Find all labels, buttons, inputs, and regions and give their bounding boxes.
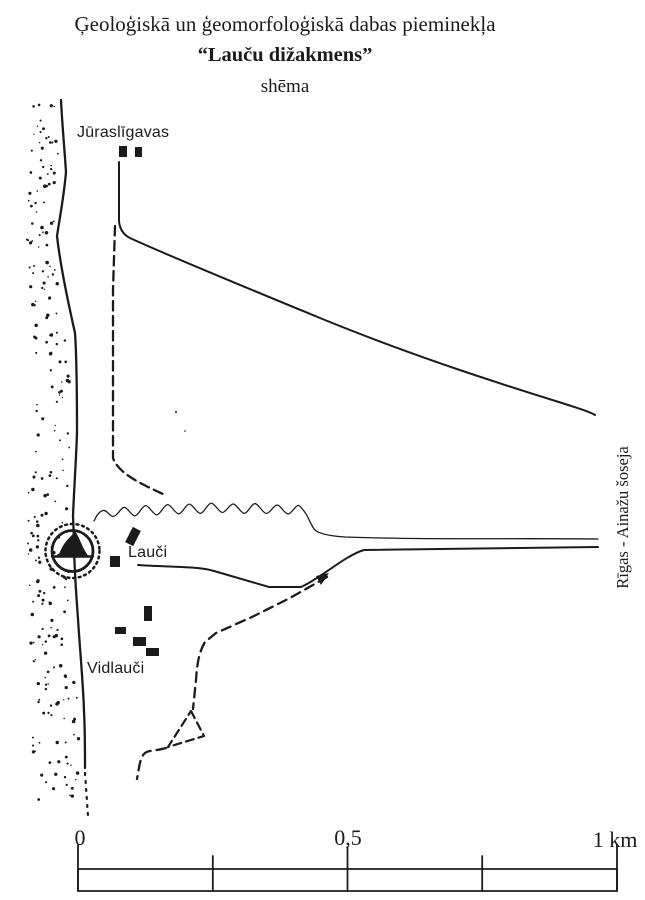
beach-dot bbox=[51, 385, 54, 388]
beach-dot bbox=[31, 222, 34, 225]
beach-dot bbox=[36, 211, 38, 213]
beach-dot bbox=[67, 432, 69, 434]
label-jurasligavas: Jūraslīgavas bbox=[77, 124, 169, 142]
beach-dot bbox=[31, 303, 34, 306]
beach-dot bbox=[64, 339, 66, 341]
beach-dot bbox=[51, 142, 53, 144]
beach-dot bbox=[27, 543, 29, 545]
paper-specks bbox=[175, 411, 186, 432]
beach-dot bbox=[54, 430, 56, 432]
beach-dot bbox=[33, 265, 35, 267]
beach-dot bbox=[36, 524, 40, 528]
beach-dot bbox=[53, 106, 54, 107]
beach-dot bbox=[42, 644, 43, 645]
beach-dot bbox=[65, 742, 67, 744]
beach-dot bbox=[54, 425, 55, 426]
beach-dot bbox=[56, 477, 58, 479]
building bbox=[119, 146, 127, 157]
beach-dot bbox=[39, 177, 42, 180]
beach-dot bbox=[66, 485, 68, 487]
beach-dot bbox=[41, 147, 44, 150]
beach-dot bbox=[62, 459, 64, 461]
beach-dot bbox=[47, 276, 49, 278]
coastline bbox=[57, 100, 85, 768]
footpath-arrow bbox=[316, 573, 329, 585]
beach-dot bbox=[50, 369, 52, 371]
beach-dot bbox=[32, 534, 35, 537]
beach-dot bbox=[54, 501, 56, 503]
building bbox=[133, 637, 146, 646]
beach-dot bbox=[36, 190, 38, 192]
beach-dot bbox=[60, 643, 63, 646]
beach-dot bbox=[45, 341, 48, 344]
beach-dot bbox=[50, 104, 53, 107]
beach-dot bbox=[53, 172, 56, 175]
beach-dot bbox=[55, 634, 58, 637]
beach-dot bbox=[46, 244, 49, 247]
beach-dot bbox=[37, 701, 39, 703]
beach-dot bbox=[59, 394, 61, 396]
footpath-triangle-loop bbox=[168, 711, 204, 747]
beach-dot bbox=[31, 488, 34, 491]
beach-dot bbox=[35, 471, 37, 473]
beach-dot bbox=[41, 477, 44, 480]
beach-dot bbox=[42, 270, 44, 272]
beach-dot bbox=[50, 471, 53, 474]
beach-dot bbox=[51, 352, 53, 354]
beach-dot bbox=[37, 579, 40, 582]
beach-dot bbox=[50, 222, 53, 225]
buildings bbox=[110, 146, 159, 656]
beach-dot bbox=[34, 750, 36, 752]
beach-dot bbox=[39, 742, 41, 744]
beach-dot bbox=[35, 410, 37, 412]
beach-dot bbox=[60, 390, 63, 393]
beach-dot bbox=[36, 545, 39, 548]
beach-dot bbox=[35, 352, 37, 354]
beach-dot bbox=[49, 474, 52, 477]
beach-dot bbox=[32, 105, 35, 108]
beach-dot bbox=[33, 642, 35, 644]
title-line3: shēma bbox=[0, 71, 570, 102]
footpath-south bbox=[193, 577, 327, 709]
beach-dot bbox=[71, 787, 74, 790]
scale-label-05: 0,5 bbox=[325, 825, 371, 851]
beach-dot bbox=[42, 712, 45, 715]
beach-dot bbox=[45, 261, 49, 265]
beach-dot bbox=[32, 272, 34, 274]
beach-dot bbox=[30, 205, 33, 208]
beach-dot bbox=[49, 266, 51, 268]
beach-dot bbox=[43, 281, 46, 284]
beach-dot bbox=[56, 332, 58, 334]
scale-label-1km: 1 km bbox=[586, 827, 644, 853]
beach-dot bbox=[38, 699, 40, 701]
beach-dot bbox=[62, 470, 64, 472]
beach-dot bbox=[63, 610, 66, 613]
beach-dot bbox=[29, 241, 32, 244]
beach-dot bbox=[41, 287, 43, 289]
beach-dot bbox=[29, 285, 32, 288]
beach-dot bbox=[69, 795, 71, 797]
beach-dot bbox=[27, 239, 29, 241]
beach-dot bbox=[38, 557, 40, 559]
beach-dot bbox=[45, 137, 47, 139]
beach-dot bbox=[50, 165, 52, 167]
beach-dot bbox=[36, 404, 38, 406]
beach-dot bbox=[54, 773, 57, 776]
beach-dot bbox=[47, 173, 49, 175]
beach-dot bbox=[66, 763, 68, 765]
beach-dot bbox=[32, 745, 34, 747]
beach-dot bbox=[29, 266, 31, 268]
beach-dot bbox=[38, 104, 41, 107]
beach-dot bbox=[37, 125, 38, 126]
beach-dot bbox=[34, 324, 37, 327]
beach-dot bbox=[56, 629, 58, 631]
beach-dot bbox=[64, 776, 66, 778]
beach-dot bbox=[44, 512, 47, 515]
beach-dot bbox=[40, 120, 42, 122]
label-vidlauci: Vidlauči bbox=[87, 660, 144, 678]
beach-dot bbox=[71, 794, 74, 797]
road-diagonal-to-highway bbox=[119, 221, 595, 415]
road-lauci bbox=[138, 547, 598, 587]
beach-dot bbox=[38, 590, 41, 593]
beach-dot bbox=[67, 600, 69, 602]
beach-dot bbox=[67, 380, 70, 383]
beach-dot bbox=[37, 433, 40, 436]
beach-dot bbox=[38, 246, 40, 248]
beach-dot bbox=[41, 417, 44, 420]
beach-dot bbox=[40, 131, 42, 133]
beach-dot bbox=[45, 684, 47, 686]
beach-dot bbox=[43, 201, 45, 203]
building bbox=[115, 627, 126, 634]
beach-dot bbox=[33, 476, 35, 478]
beach-dot bbox=[48, 136, 50, 138]
building bbox=[110, 556, 120, 567]
beach-dot bbox=[72, 681, 75, 684]
beach-dot bbox=[42, 166, 44, 168]
beach-dot bbox=[56, 313, 58, 315]
scale-label-0: 0 bbox=[70, 825, 90, 851]
beach-dot bbox=[31, 613, 35, 617]
beach-dot bbox=[49, 761, 52, 764]
beach-dot bbox=[45, 640, 47, 642]
beach-dot bbox=[47, 712, 49, 714]
beach-dot bbox=[41, 628, 43, 630]
beach-dot bbox=[41, 603, 43, 605]
beach-dot bbox=[37, 535, 40, 538]
beach-dot bbox=[28, 492, 30, 494]
beach-dot bbox=[36, 520, 39, 523]
beach-dot bbox=[35, 559, 37, 561]
beach-dot bbox=[50, 619, 53, 622]
beach-dot bbox=[47, 671, 50, 674]
beach-dot bbox=[64, 586, 66, 588]
beach-dot bbox=[56, 343, 58, 345]
beach-dot bbox=[68, 698, 70, 700]
beach-dot bbox=[46, 313, 49, 316]
scale-bar bbox=[78, 845, 617, 891]
beach-dot bbox=[42, 599, 45, 602]
beach-dot bbox=[65, 676, 67, 678]
beach-dot bbox=[53, 666, 55, 668]
beach-dot bbox=[37, 594, 40, 597]
beach-dot bbox=[64, 361, 67, 364]
beach-dot bbox=[61, 381, 62, 382]
beach-dot bbox=[48, 634, 51, 637]
beach-dot bbox=[28, 200, 30, 202]
building bbox=[144, 606, 152, 621]
beach-dot bbox=[35, 451, 37, 453]
beach-dot bbox=[63, 699, 64, 700]
beach-dot bbox=[54, 269, 56, 271]
beach-dot bbox=[28, 192, 31, 195]
stream bbox=[94, 503, 598, 539]
beach-dot bbox=[73, 734, 75, 736]
beach-dot bbox=[53, 586, 56, 589]
beach-dot bbox=[35, 300, 37, 302]
beach-dot bbox=[32, 601, 34, 603]
beach-stipple bbox=[26, 104, 80, 801]
beach-dot bbox=[70, 764, 71, 765]
beach-dot bbox=[68, 447, 70, 449]
beach-dot bbox=[56, 401, 58, 403]
beach-dot bbox=[46, 493, 49, 496]
beach-dot bbox=[45, 677, 47, 679]
beach-dot bbox=[67, 375, 70, 378]
beach-dot bbox=[33, 660, 35, 662]
beach-dot bbox=[37, 798, 40, 801]
beach-dot bbox=[34, 336, 37, 339]
beach-dot bbox=[30, 171, 33, 174]
beach-dot bbox=[75, 779, 77, 781]
beach-dot bbox=[42, 127, 45, 130]
beach-dot bbox=[31, 150, 33, 152]
beach-dot bbox=[76, 771, 79, 774]
beach-dot bbox=[49, 141, 52, 144]
beach-dot bbox=[43, 494, 46, 497]
beach-dot bbox=[63, 718, 65, 720]
beach-dot bbox=[59, 664, 63, 668]
beach-dot bbox=[61, 522, 63, 524]
beach-dot bbox=[61, 638, 64, 641]
beach-dot bbox=[53, 221, 55, 223]
footpath-south-exit bbox=[137, 748, 166, 779]
title-line1: Ģeoloģiskā un ģeomorfoloģiskā dabas piem… bbox=[0, 9, 570, 40]
beach-dot bbox=[44, 652, 47, 655]
beach-dot bbox=[48, 298, 49, 299]
beach-dot bbox=[35, 659, 36, 660]
beach-dot bbox=[29, 548, 33, 552]
beach-dot bbox=[45, 688, 47, 690]
beach-dot bbox=[52, 787, 55, 790]
beach-dot bbox=[48, 183, 51, 186]
beach-dot bbox=[34, 516, 36, 518]
beach-dot bbox=[54, 140, 57, 143]
beach-dot bbox=[42, 231, 44, 233]
beach-dot bbox=[55, 741, 58, 744]
building bbox=[146, 648, 159, 656]
beach-dot bbox=[50, 714, 52, 716]
beach-dot bbox=[28, 520, 30, 522]
beach-dot bbox=[62, 397, 63, 398]
beach-dot bbox=[30, 532, 33, 535]
beach-dot bbox=[57, 153, 59, 155]
beach-dot bbox=[47, 683, 49, 685]
beach-dot bbox=[45, 781, 47, 783]
beach-dot bbox=[72, 720, 76, 724]
beach-dot bbox=[52, 273, 54, 275]
beach-dot bbox=[65, 686, 68, 689]
beach-dot bbox=[29, 585, 31, 587]
beach-dot bbox=[50, 704, 52, 706]
coastline-dotted-end bbox=[85, 773, 88, 816]
beach-dot bbox=[39, 142, 40, 143]
beach-dot bbox=[44, 289, 45, 290]
beach-dot bbox=[38, 561, 41, 564]
beach-dot bbox=[56, 701, 60, 705]
beach-dot bbox=[76, 697, 78, 699]
beach-dot bbox=[65, 507, 68, 510]
beach-dot bbox=[43, 592, 45, 594]
beach-dot bbox=[40, 514, 43, 517]
beach-dot bbox=[33, 134, 34, 135]
beach-dot bbox=[37, 682, 40, 685]
footpath-north bbox=[113, 226, 165, 495]
label-highway: Rīgas - Ainažu šoseja bbox=[613, 436, 633, 599]
beach-dot bbox=[32, 737, 34, 739]
beach-dot bbox=[53, 181, 56, 184]
beach-dot bbox=[49, 602, 52, 605]
beach-dot bbox=[40, 159, 42, 161]
beach-dot bbox=[29, 642, 32, 645]
beach-dot bbox=[40, 226, 44, 230]
building bbox=[135, 147, 142, 157]
beach-dot bbox=[66, 784, 68, 786]
beach-dot bbox=[39, 234, 41, 236]
beach-dot bbox=[45, 231, 49, 235]
beach-dot bbox=[50, 168, 52, 170]
beach-dot bbox=[40, 774, 43, 777]
beach-dot bbox=[38, 635, 41, 638]
map-title: Ģeoloģiskā un ģeomorfoloģiskā dabas piem… bbox=[0, 9, 570, 102]
beach-dot bbox=[37, 539, 39, 541]
beach-dot bbox=[43, 184, 47, 188]
beach-dot bbox=[28, 553, 29, 554]
beach-dot bbox=[50, 627, 52, 629]
beach-dot bbox=[77, 737, 80, 740]
beach-dot bbox=[65, 756, 68, 759]
label-lauci: Lauči bbox=[128, 544, 167, 562]
beach-dot bbox=[56, 282, 59, 285]
beach-dot bbox=[34, 202, 36, 204]
beach-dot bbox=[50, 333, 53, 336]
beach-dot bbox=[59, 439, 61, 441]
beach-dot bbox=[57, 760, 60, 763]
title-line2: “Lauču dižakmens” bbox=[0, 40, 570, 71]
map-sheet: Ģeoloģiskā un ģeomorfoloģiskā dabas piem… bbox=[0, 0, 645, 900]
beach-dot bbox=[58, 360, 61, 363]
